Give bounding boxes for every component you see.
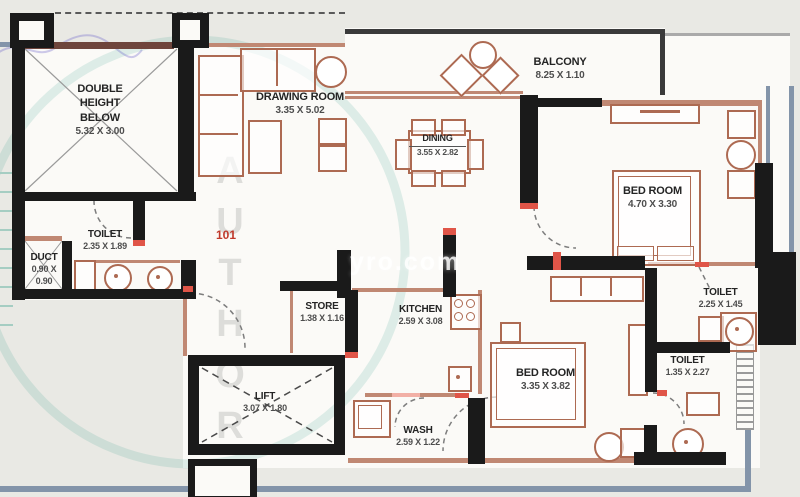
room-name: BED ROOM <box>605 184 700 198</box>
wardrobe-line <box>580 278 582 296</box>
wall <box>520 98 602 107</box>
sofa <box>198 55 244 177</box>
sofa-cushion-line <box>200 133 238 135</box>
washbasin-dot <box>156 275 160 279</box>
room-dims: 1.38 X 1.16 <box>288 313 356 325</box>
wall <box>634 452 726 465</box>
wall <box>13 289 196 299</box>
room-dims: 4.70 X 3.30 <box>605 198 700 211</box>
balcony-outer-edge <box>345 29 663 34</box>
side-table-round <box>315 56 347 88</box>
room-dims: 5.32 X 3.00 <box>60 125 140 138</box>
room-label-toilet-master: TOILET 2.25 X 1.45 <box>678 286 763 311</box>
room-dims: 8.25 X 1.10 <box>505 69 615 82</box>
wardrobe-unit <box>727 170 756 199</box>
wall <box>645 342 730 353</box>
balcony-end-wall <box>660 29 665 95</box>
partition-wall <box>183 292 187 356</box>
room-label-bedroom-master: BED ROOM 4.70 X 3.30 <box>605 184 700 211</box>
room-label-balcony: BALCONY 8.25 X 1.10 <box>505 55 615 82</box>
door-opening-mark <box>695 262 709 267</box>
partition-wall <box>195 43 345 47</box>
room-label-duct: DUCT 0.90 X 0.90 <box>22 251 66 287</box>
partition-wall <box>352 288 448 292</box>
stove-burner <box>466 312 475 321</box>
partition-wall <box>758 104 762 166</box>
wardrobe-line <box>610 278 612 296</box>
partition-wall <box>25 236 62 241</box>
sofa-corner <box>240 48 316 92</box>
wall <box>520 95 538 203</box>
room-dims: 2.59 X 1.22 <box>378 437 458 449</box>
room-label-toilet-common: TOILET 1.35 X 2.27 <box>650 354 725 379</box>
boundary-line <box>0 486 751 492</box>
washbasin-dot <box>735 327 739 331</box>
balcony-rail <box>345 91 523 94</box>
unit-number: 101 <box>216 228 236 242</box>
dining-chair <box>441 170 466 187</box>
room-name: DRAWING ROOM <box>245 90 355 104</box>
room-label-bedroom-second: BED ROOM 3.35 X 3.82 <box>498 366 593 393</box>
sink-drain <box>456 375 460 379</box>
balcony-table-round <box>469 41 497 69</box>
boundary-line <box>745 428 751 490</box>
room-name: BED ROOM <box>498 366 593 380</box>
wc <box>104 264 132 292</box>
door-opening-mark <box>183 286 193 292</box>
door-opening-mark <box>345 352 358 358</box>
room-name: DOUBLE HEIGHT BELOW <box>68 82 132 125</box>
wc-dot <box>114 274 118 278</box>
cistern <box>686 392 720 416</box>
room-name: KITCHEN <box>378 303 463 316</box>
room-label-drawing-room: DRAWING ROOM 3.35 X 5.02 <box>245 90 355 117</box>
room-name: TOILET <box>650 354 725 367</box>
balcony-rail <box>345 96 523 99</box>
dining-chair <box>467 139 484 170</box>
room-name: TOILET <box>678 286 763 299</box>
stove-burner <box>466 299 475 308</box>
coffee-table <box>248 120 282 174</box>
door-opening-mark <box>455 393 469 398</box>
ledge-line <box>665 33 790 36</box>
room-dims: 3.35 X 5.02 <box>245 104 355 117</box>
sofa-cushion-line <box>276 50 278 86</box>
room-label-toilet-entry: TOILET 2.35 X 1.89 <box>65 228 145 253</box>
room-name: LIFT <box>225 390 305 403</box>
room-dims: 2.59 X 3.08 <box>378 316 463 328</box>
room-name: WASH <box>378 424 458 437</box>
room-name: BALCONY <box>505 55 615 69</box>
toilet-shelf-line <box>95 260 180 263</box>
door-opening-mark <box>392 393 420 397</box>
wall <box>758 252 796 345</box>
wall <box>13 192 196 201</box>
room-label-lift: LIFT 3.07 X 1.80 <box>225 390 305 415</box>
room-dims: 2.35 X 1.89 <box>65 241 145 253</box>
side-table <box>500 322 521 343</box>
stool <box>318 118 347 145</box>
room-label-double-height: DOUBLE HEIGHT BELOW 5.32 X 3.00 <box>60 82 140 138</box>
wall <box>280 281 340 291</box>
partition-wall <box>348 458 638 463</box>
dresser <box>610 104 700 124</box>
wall <box>178 48 194 193</box>
site-watermark: yro.com <box>350 248 600 277</box>
room-name: TOILET <box>65 228 145 241</box>
room-dims: 3.55 X 2.82 <box>409 147 466 158</box>
dining-chair <box>411 170 436 187</box>
room-label-dining: DINING 3.55 X 2.82 <box>409 133 466 158</box>
room-label-wash: WASH 2.59 X 1.22 <box>378 424 458 449</box>
pillow <box>657 246 694 261</box>
room-dims: 3.07 X 1.80 <box>225 403 305 415</box>
dresser-line <box>640 110 680 113</box>
wardrobe-unit <box>727 110 756 139</box>
room-dims: 2.25 X 1.45 <box>678 299 763 311</box>
wall <box>645 268 657 344</box>
stool <box>726 140 756 170</box>
room-dims: 3.35 X 3.82 <box>498 380 593 393</box>
room-label-store: STORE 1.38 X 1.16 <box>288 300 356 325</box>
door-opening-mark <box>657 390 667 396</box>
stool <box>318 145 347 172</box>
column-core <box>180 20 200 40</box>
door-opening-mark <box>520 203 538 209</box>
room-dims: 0.90 <box>22 276 66 288</box>
column-core <box>19 21 44 40</box>
door-opening-mark <box>443 228 456 235</box>
boundary-line <box>789 86 794 274</box>
wall-hatch-right <box>736 344 754 430</box>
wall <box>468 398 485 464</box>
room-name: STORE <box>288 300 356 313</box>
room-name: DINING <box>409 133 466 147</box>
floor-plan: AUTHORI <box>0 0 800 497</box>
service-box <box>188 459 257 497</box>
cistern <box>74 260 96 292</box>
wc-dot <box>684 440 688 444</box>
room-dims: 0.90 X <box>22 264 66 276</box>
sink <box>448 366 472 392</box>
room-label-kitchen: KITCHEN 2.59 X 3.08 <box>378 303 463 328</box>
sofa-cushion-line <box>200 94 238 96</box>
wardrobe-row <box>550 276 644 302</box>
room-name: DUCT <box>22 251 66 264</box>
room-dims: 1.35 X 2.27 <box>650 367 725 379</box>
